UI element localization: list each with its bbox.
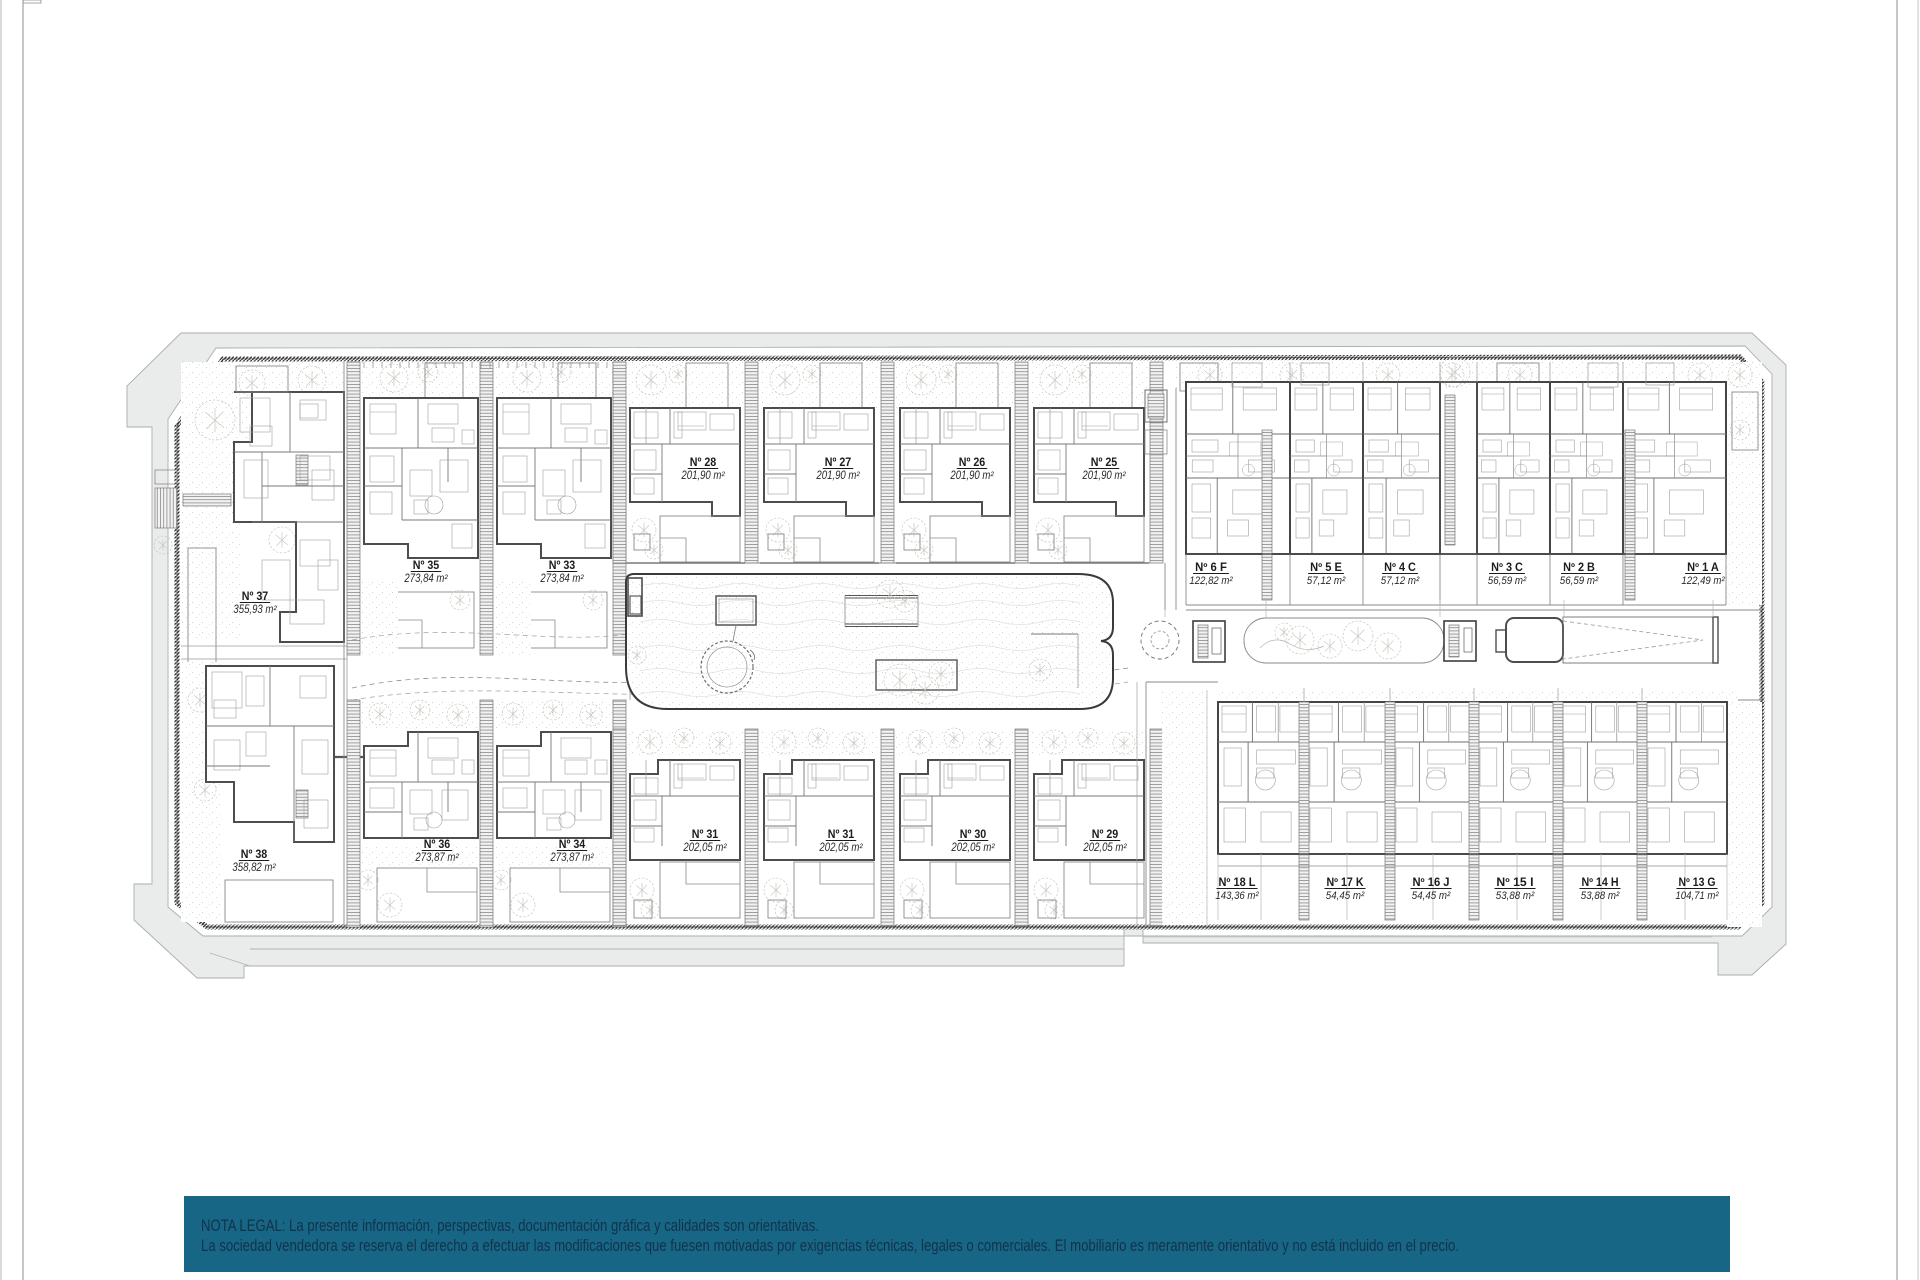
svg-text:57,12 m²: 57,12 m² (1307, 575, 1346, 587)
svg-text:Nº 30: Nº 30 (960, 827, 987, 841)
svg-text:Nº 16 J: Nº 16 J (1412, 877, 1449, 889)
svg-text:56,59 m²: 56,59 m² (1560, 575, 1599, 587)
svg-text:Nº 13 G: Nº 13 G (1678, 877, 1715, 889)
svg-text:201,90 m²: 201,90 m² (816, 470, 861, 482)
svg-text:273,87 m²: 273,87 m² (415, 852, 460, 864)
svg-text:Nº 34: Nº 34 (559, 837, 586, 851)
svg-text:201,90 m²: 201,90 m² (1082, 470, 1127, 482)
svg-text:NOTA LEGAL: La presente inform: NOTA LEGAL: La presente información, per… (201, 1217, 819, 1235)
svg-text:355,93 m²: 355,93 m² (233, 604, 277, 616)
svg-text:Nº 36: Nº 36 (424, 837, 451, 851)
svg-text:122,49 m²: 122,49 m² (1681, 575, 1724, 587)
svg-text:Nº 6 F: Nº 6 F (1195, 562, 1227, 574)
svg-text:Nº 1 A: Nº 1 A (1687, 562, 1719, 574)
svg-text:Nº 5 E: Nº 5 E (1310, 562, 1342, 574)
svg-text:201,90 m²: 201,90 m² (681, 470, 726, 482)
svg-text:Nº 33: Nº 33 (549, 558, 576, 572)
svg-text:202,05 m²: 202,05 m² (1083, 842, 1128, 854)
svg-text:53,88 m²: 53,88 m² (1581, 890, 1620, 902)
svg-text:54,45 m²: 54,45 m² (1412, 890, 1451, 902)
svg-text:56,59 m²: 56,59 m² (1488, 575, 1527, 587)
svg-text:273,84 m²: 273,84 m² (540, 573, 585, 585)
svg-text:Nº 15 I: Nº 15 I (1496, 877, 1533, 889)
svg-text:Nº 37: Nº 37 (242, 589, 269, 603)
svg-text:Nº 4 C: Nº 4 C (1384, 562, 1416, 574)
svg-text:202,05 m²: 202,05 m² (683, 842, 728, 854)
svg-text:143,36 m²: 143,36 m² (1215, 890, 1258, 902)
svg-text:Nº 27: Nº 27 (825, 455, 852, 469)
svg-text:201,90 m²: 201,90 m² (950, 470, 995, 482)
svg-text:Nº 25: Nº 25 (1091, 455, 1118, 469)
svg-text:Nº 14 H: Nº 14 H (1581, 877, 1618, 889)
svg-text:Nº 31: Nº 31 (692, 827, 719, 841)
svg-text:57,12 m²: 57,12 m² (1381, 575, 1420, 587)
svg-text:Nº 18 L: Nº 18 L (1218, 877, 1255, 889)
svg-text:Nº 35: Nº 35 (413, 558, 440, 572)
svg-text:Nº 26: Nº 26 (959, 455, 986, 469)
svg-text:202,05 m²: 202,05 m² (951, 842, 996, 854)
svg-text:Nº 31: Nº 31 (828, 827, 855, 841)
svg-text:273,87 m²: 273,87 m² (550, 852, 595, 864)
svg-text:54,45 m²: 54,45 m² (1326, 890, 1365, 902)
svg-text:Nº 28: Nº 28 (690, 455, 717, 469)
svg-text:273,84 m²: 273,84 m² (404, 573, 449, 585)
svg-text:122,82 m²: 122,82 m² (1189, 575, 1232, 587)
svg-text:Nº 29: Nº 29 (1092, 827, 1119, 841)
svg-text:Nº 17 K: Nº 17 K (1326, 877, 1364, 889)
svg-text:Nº 2 B: Nº 2 B (1563, 562, 1595, 574)
svg-text:104,71 m²: 104,71 m² (1675, 890, 1718, 902)
svg-text:358,82 m²: 358,82 m² (232, 862, 276, 874)
svg-text:202,05 m²: 202,05 m² (819, 842, 864, 854)
svg-text:La sociedad vendedora se reser: La sociedad vendedora se reserva el dere… (201, 1237, 1459, 1255)
svg-text:Nº 38: Nº 38 (241, 847, 268, 861)
svg-text:53,88 m²: 53,88 m² (1496, 890, 1535, 902)
svg-text:Nº 3 C: Nº 3 C (1491, 562, 1523, 574)
